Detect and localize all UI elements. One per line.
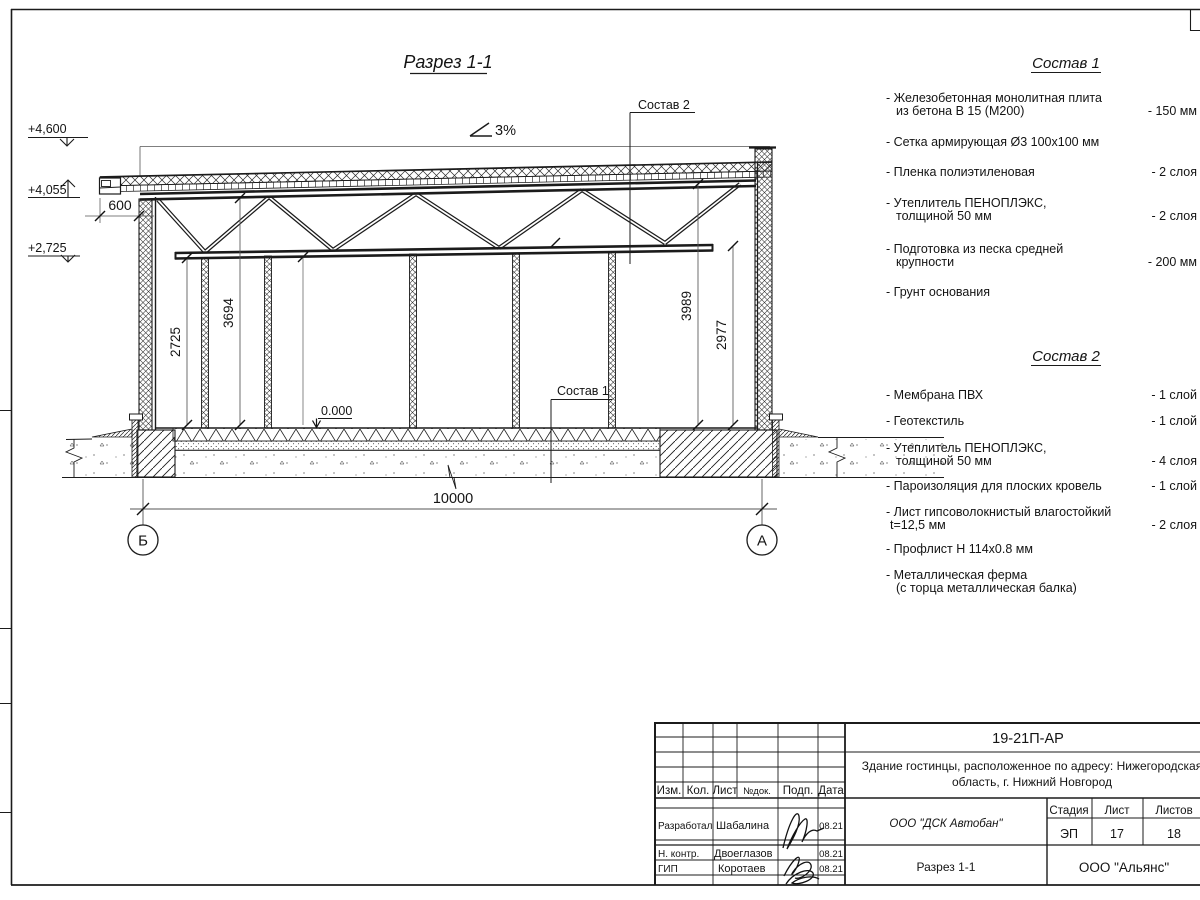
project-line2: область, г. Нижний Новгород bbox=[952, 775, 1112, 789]
svg-text:- Грунт основания: - Грунт основания bbox=[886, 285, 990, 299]
row3-date: 08.21 bbox=[819, 864, 843, 875]
h-sheets: Листов bbox=[1155, 805, 1192, 817]
foundation-right bbox=[660, 430, 777, 477]
right-wall bbox=[749, 148, 776, 431]
svg-text:3694: 3694 bbox=[221, 297, 236, 328]
svg-text:- Утеплитель ПЕНОПЛЭКС,: - Утеплитель ПЕНОПЛЭКС, bbox=[886, 196, 1046, 210]
dim-height-2725: 2725 bbox=[168, 253, 192, 430]
drawing-title: Разрез 1-1 bbox=[403, 52, 492, 74]
row3-name: Коротаев bbox=[718, 863, 766, 875]
svg-text:- Пароизоляция для плоских кро: - Пароизоляция для плоских кровель bbox=[886, 479, 1102, 493]
sostav2-title: Состав 2 bbox=[1032, 348, 1100, 365]
callout-floor-label: Состав 1 bbox=[557, 384, 609, 398]
svg-text:2977: 2977 bbox=[714, 320, 729, 350]
axis-bubbles: Б А bbox=[128, 525, 777, 555]
truss-diagonals bbox=[158, 184, 740, 252]
row2-date: 08.21 bbox=[819, 849, 843, 860]
svg-text:- 2 слоя: - 2 слоя bbox=[1152, 165, 1197, 179]
row1-name: Шабалина bbox=[716, 820, 770, 832]
elevation-parapet: +4,600 bbox=[28, 122, 88, 146]
svg-text:крупности: крупности bbox=[896, 255, 954, 269]
elevation-floor: 0.000 bbox=[313, 404, 353, 428]
apron-right bbox=[779, 429, 818, 437]
elevation-eaves: +4,055 bbox=[28, 180, 80, 198]
interior-columns bbox=[202, 252, 616, 428]
svg-text:- 1 слой: - 1 слой bbox=[1151, 388, 1197, 402]
col-data: Дата bbox=[818, 785, 844, 797]
svg-text:- 4 слоя: - 4 слоя bbox=[1152, 454, 1197, 468]
svg-text:- 2 слоя: - 2 слоя bbox=[1152, 209, 1197, 223]
col-izm: Изм. bbox=[657, 785, 682, 797]
svg-text:- 2 слоя: - 2 слоя bbox=[1152, 518, 1197, 532]
sostav1-list: Состав 1 - Железобетонная монолитная пли… bbox=[886, 55, 1197, 299]
svg-text:толщиной 50 мм: толщиной 50 мм bbox=[896, 209, 992, 223]
title-block: Изм. Кол. Лист №док. Подп. Дата Разработ… bbox=[654, 723, 1200, 885]
axis-label-right: А bbox=[757, 533, 767, 550]
callouts: Состав 2 Состав 1 bbox=[551, 98, 695, 483]
svg-text:- Железобетонная монолитная п: - Железобетонная монолитная плита bbox=[886, 91, 1102, 105]
svg-text:- Профлист Н 114х0.8 мм: - Профлист Н 114х0.8 мм bbox=[886, 542, 1033, 556]
svg-text:0.000: 0.000 bbox=[321, 404, 352, 418]
section-title: Разрез 1-1 bbox=[403, 52, 492, 72]
svg-text:- Утеплитель ПЕНОПЛЭКС,: - Утеплитель ПЕНОПЛЭКС, bbox=[886, 441, 1046, 455]
svg-text:- Мембрана ПВХ: - Мембрана ПВХ bbox=[886, 388, 984, 402]
svg-text:+4,600: +4,600 bbox=[28, 122, 67, 136]
svg-text:t=12,5 мм: t=12,5 мм bbox=[890, 518, 946, 532]
row2-role: Н. контр. bbox=[658, 849, 699, 860]
row1-date: 08.21 bbox=[819, 821, 843, 832]
elevation-marks: +4,600 +4,055 +2,725 0.000 bbox=[28, 122, 352, 428]
svg-text:3989: 3989 bbox=[679, 291, 694, 321]
col-list: Лист bbox=[713, 785, 739, 797]
left-wall bbox=[139, 197, 156, 430]
walls bbox=[139, 148, 776, 431]
col-ndok: №док. bbox=[743, 786, 771, 797]
svg-text:2725: 2725 bbox=[168, 327, 183, 357]
svg-text:- 1 слой: - 1 слой bbox=[1151, 479, 1197, 493]
axis-label-left: Б bbox=[138, 533, 148, 550]
apron-left bbox=[92, 429, 132, 437]
truss-chords bbox=[140, 181, 756, 260]
sheets-total: 18 bbox=[1167, 827, 1181, 841]
section-drawing-canvas: Разрез 1-1 bbox=[0, 0, 1200, 900]
roof-edge-cap bbox=[100, 178, 121, 194]
svg-text:- Лист гипсоволокнистый влагос: - Лист гипсоволокнистый влагостойкий bbox=[886, 505, 1111, 519]
drawing-sheet: Разрез 1-1 bbox=[0, 0, 1200, 900]
sostav1-title: Состав 1 bbox=[1032, 55, 1100, 72]
svg-text:из бетона В 15 (М200): из бетона В 15 (М200) bbox=[896, 104, 1024, 118]
sand-layer-band bbox=[175, 441, 660, 450]
organization: ООО "ДСК Автобан" bbox=[889, 818, 1003, 830]
svg-text:- Пленка полиэтиленовая: - Пленка полиэтиленовая bbox=[886, 165, 1035, 179]
sheet-name: Разрез 1-1 bbox=[917, 860, 976, 874]
slope-angle-icon bbox=[470, 123, 492, 136]
callout-roof-label: Состав 2 bbox=[638, 98, 690, 112]
plinth-left bbox=[132, 417, 138, 477]
svg-text:(с торца металлическая балка): (с торца металлическая балка) bbox=[896, 581, 1077, 595]
roof-assembly bbox=[100, 162, 773, 194]
slope-label: 3% bbox=[495, 123, 516, 139]
project-line1: Здание гостинцы, расположенное по адресу… bbox=[862, 759, 1200, 773]
svg-text:10000: 10000 bbox=[433, 491, 473, 507]
dim-span-10000: 10000 bbox=[130, 479, 777, 525]
svg-text:+4,055: +4,055 bbox=[28, 183, 67, 197]
slope-mark: 3% bbox=[470, 123, 516, 139]
elevation-truss: +2,725 bbox=[28, 241, 80, 262]
doc-code: 19-21П-АР bbox=[992, 731, 1064, 747]
sheet-no: 17 bbox=[1110, 827, 1124, 841]
row1-role: Разработал bbox=[658, 820, 713, 832]
svg-text:- Металлическая ферма: - Металлическая ферма bbox=[886, 568, 1027, 582]
corner-mark bbox=[1191, 10, 1200, 31]
contractor: ООО "Альянс" bbox=[1079, 860, 1169, 875]
dim-height-2977: 2977 bbox=[714, 241, 738, 430]
row2-name: Двоеглазов bbox=[714, 848, 773, 860]
svg-text:600: 600 bbox=[108, 197, 132, 213]
svg-text:толщиной 50 мм: толщиной 50 мм bbox=[896, 454, 992, 468]
row3-role: ГИП bbox=[658, 864, 678, 875]
col-podp: Подп. bbox=[783, 785, 814, 797]
col-kol: Кол. bbox=[687, 785, 710, 797]
base-layer-band bbox=[175, 450, 660, 477]
svg-text:+2,725: +2,725 bbox=[28, 241, 67, 255]
svg-text:- Подготовка из песка средней: - Подготовка из песка средней bbox=[886, 242, 1063, 256]
svg-text:- Сетка армирующая Ø3 100х100: - Сетка армирующая Ø3 100х100 мм bbox=[886, 135, 1099, 149]
svg-text:- Геотекстиль: - Геотекстиль bbox=[886, 414, 964, 428]
svg-text:- 150 мм: - 150 мм bbox=[1148, 104, 1197, 118]
foundation-left bbox=[137, 430, 175, 477]
stage-value: ЭП bbox=[1060, 827, 1078, 841]
svg-text:- 1 слой: - 1 слой bbox=[1151, 414, 1197, 428]
svg-text:- 200 мм: - 200 мм bbox=[1148, 255, 1197, 269]
floor-screed-band bbox=[173, 428, 660, 441]
h-sheet: Лист bbox=[1105, 805, 1131, 817]
h-stage: Стадия bbox=[1049, 805, 1088, 817]
plinth-right bbox=[773, 417, 780, 477]
